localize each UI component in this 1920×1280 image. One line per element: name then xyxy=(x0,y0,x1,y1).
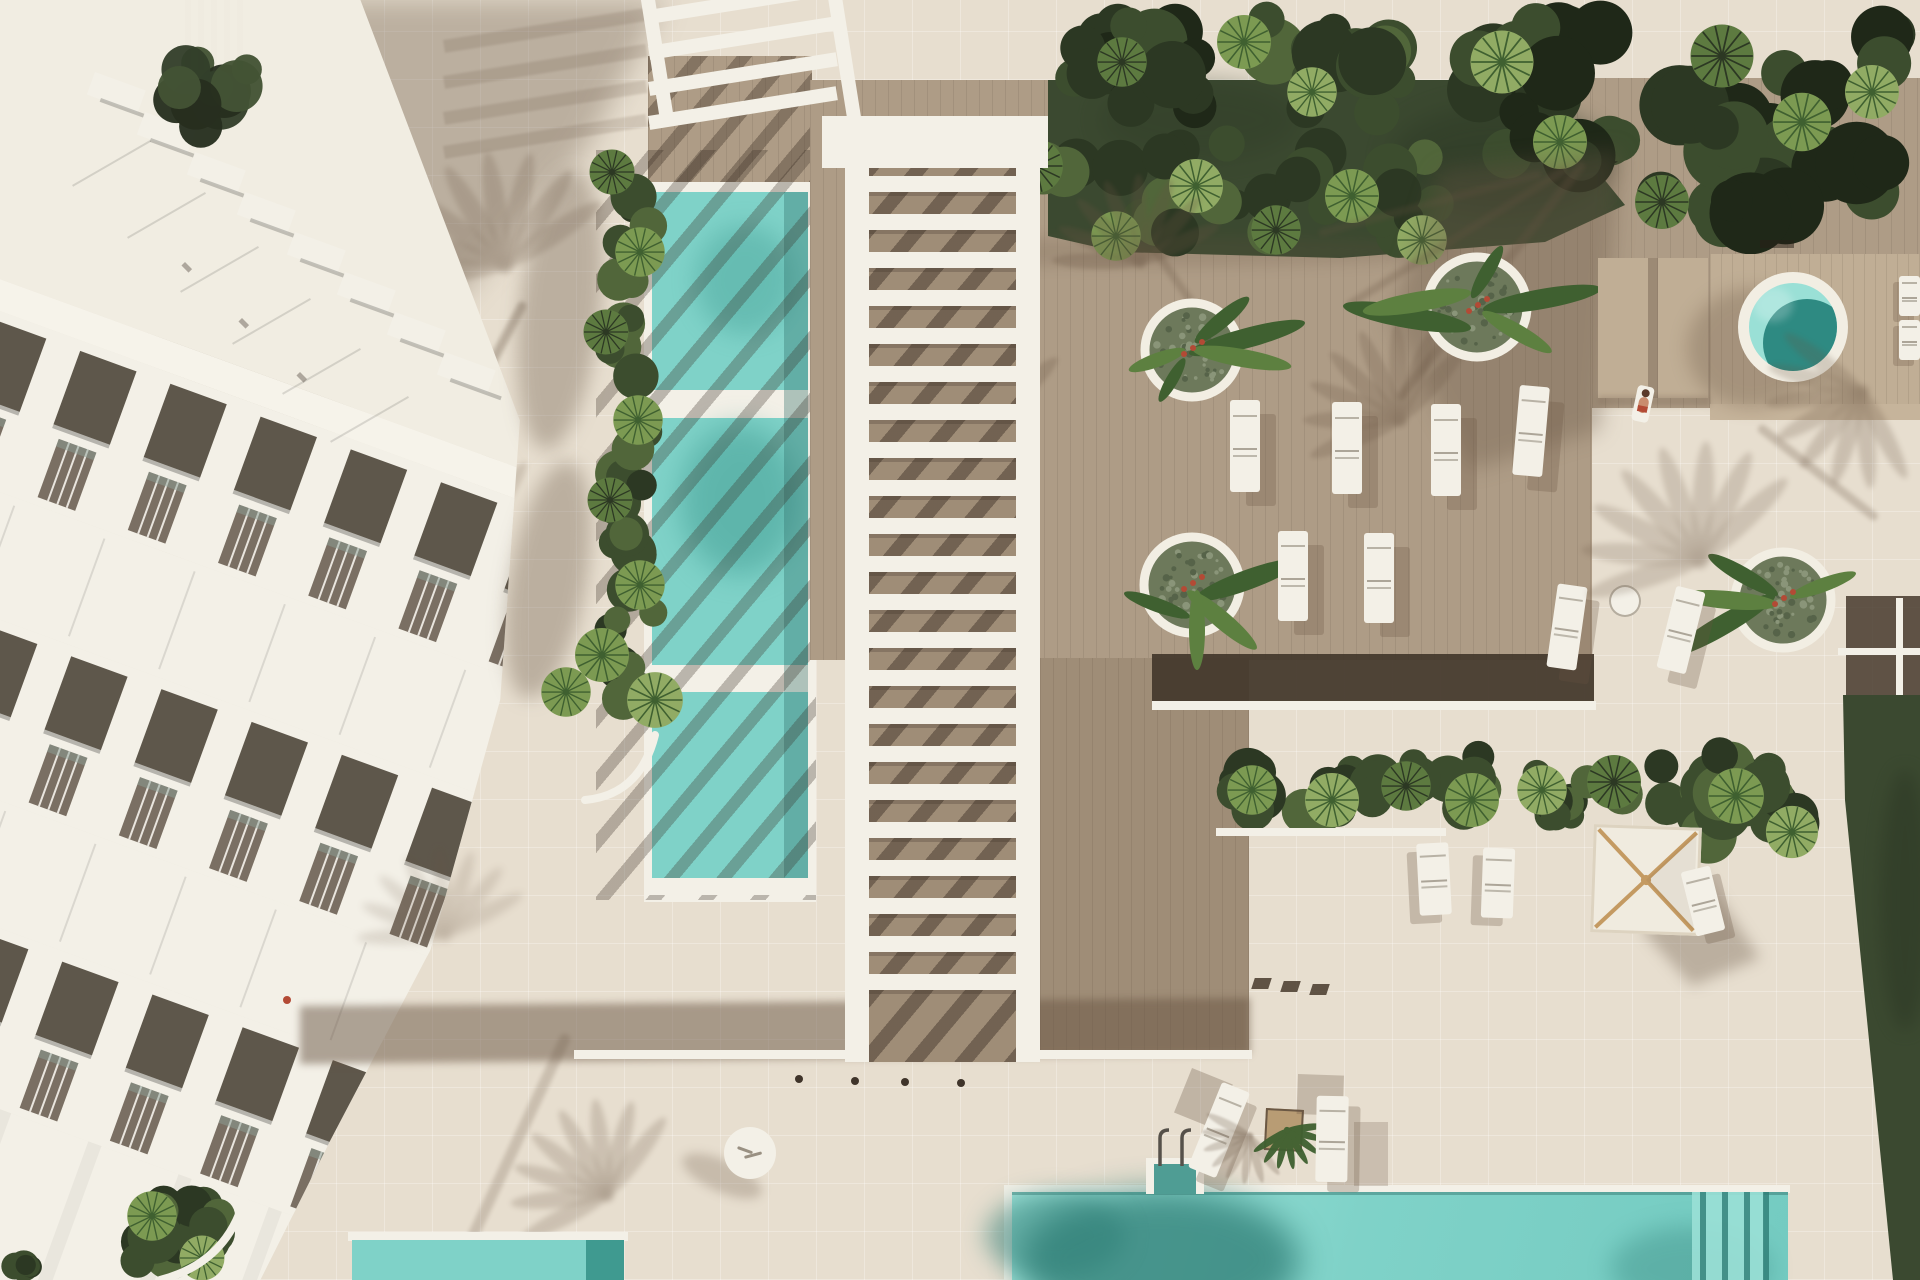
window-mullion xyxy=(878,745,901,804)
spa-platform xyxy=(1710,254,1920,406)
pool-ladder xyxy=(0,0,1920,1280)
hot-tub-shadow xyxy=(1687,288,1817,408)
building-band-terr xyxy=(0,412,1001,969)
fan-palm xyxy=(0,0,1920,1280)
towel-fold xyxy=(1485,884,1511,887)
window-frame xyxy=(23,739,92,821)
fan-palm xyxy=(0,0,1920,1280)
window-glass xyxy=(561,1247,620,1280)
lounger-back-shade xyxy=(1174,1068,1233,1129)
pergola-slat-shadow xyxy=(869,838,1016,842)
facade-module xyxy=(449,1113,597,1280)
parapet-step xyxy=(287,232,346,273)
pergola-slat-shadow xyxy=(869,230,1016,234)
platform-seam xyxy=(1760,240,1794,248)
window-mullion xyxy=(38,1056,61,1115)
window-mullion xyxy=(300,1152,323,1211)
pergola-slat xyxy=(869,974,1016,990)
pool-steps xyxy=(1692,1192,1764,1280)
headrest-line xyxy=(1281,545,1305,547)
bush-cluster xyxy=(0,0,1920,1280)
window-mullion xyxy=(868,741,891,800)
towel-fold xyxy=(1335,457,1359,459)
pergola-slat xyxy=(869,366,1016,382)
fan-palm xyxy=(0,0,1920,1280)
sun-lounger xyxy=(1899,276,1920,316)
window-frame xyxy=(556,1241,625,1280)
parapet-step-shadow xyxy=(300,258,352,280)
round-planter xyxy=(0,0,1920,1280)
lounger-shadow xyxy=(1407,851,1443,925)
lap-pool-water xyxy=(652,692,808,878)
window-mullion xyxy=(417,577,440,636)
roof-vent xyxy=(181,262,192,273)
panel-shadow-line xyxy=(774,687,832,711)
window-glass xyxy=(398,570,457,642)
panel-shadow-line xyxy=(124,1068,182,1092)
square-parasol xyxy=(1590,824,1702,936)
pergola-slat xyxy=(869,936,1016,952)
window-frame xyxy=(745,1002,814,1084)
corner-hedge xyxy=(0,0,1920,1280)
sun-lounger xyxy=(1230,400,1260,492)
panel-shadow-line xyxy=(0,1002,2,1026)
headrest-line xyxy=(1219,1097,1242,1108)
pergola-top-rail xyxy=(640,0,674,124)
facade-panel xyxy=(775,614,858,708)
lounger-cushion xyxy=(1656,586,1705,675)
fan-palm xyxy=(0,0,1920,1280)
window-mullion xyxy=(688,676,711,735)
fan-palm xyxy=(0,0,1920,1280)
hedge-cast-shadow xyxy=(506,167,615,454)
window-mullion xyxy=(237,820,260,879)
hedge-strip xyxy=(0,0,1920,1280)
window-mullion xyxy=(480,1217,503,1276)
lap-pool-head-shadows xyxy=(648,56,812,188)
panel-shadow-line xyxy=(43,730,101,754)
glass-reflection xyxy=(769,1007,809,1028)
panel-shadow-line xyxy=(305,1133,363,1157)
lounger-back-shade xyxy=(1297,1074,1344,1116)
hedge-curb xyxy=(0,0,1920,1280)
glass-reflection xyxy=(408,876,448,897)
tree-canopy xyxy=(0,0,1920,1280)
deck-steps-shaded xyxy=(1846,596,1920,706)
towel-fold xyxy=(1204,1134,1227,1145)
window-glass xyxy=(669,669,728,741)
pergola-slat-shadow xyxy=(869,420,1016,424)
sunbather xyxy=(1630,385,1656,428)
railing-line xyxy=(429,670,466,768)
window-mullion xyxy=(219,1122,242,1181)
deck-curb xyxy=(1152,701,1596,710)
hedge-cast-shadow xyxy=(490,455,607,705)
window-mullion xyxy=(598,952,621,1011)
window-glass xyxy=(128,472,187,544)
sun-lounger xyxy=(1416,842,1452,916)
person-head xyxy=(1641,389,1650,398)
fan-palm xyxy=(0,0,1920,1280)
window-frame xyxy=(32,434,101,516)
facade-module xyxy=(0,916,56,1109)
round-daybed xyxy=(724,1127,776,1179)
pool-lounger xyxy=(1188,1082,1250,1179)
pergola-slat xyxy=(869,708,1016,724)
pavement xyxy=(0,0,1920,1280)
window-mullion xyxy=(769,705,792,764)
glass-reflection xyxy=(507,603,547,624)
railing-hairline xyxy=(180,246,259,293)
railing-line xyxy=(0,811,6,909)
palm-shadow-on-deck xyxy=(0,0,1920,1280)
window-frame xyxy=(574,631,643,713)
palm-shadow-on-platform xyxy=(0,0,1920,1280)
facade-module xyxy=(458,808,606,1001)
pool-palm-shadow xyxy=(1610,1226,1770,1280)
hedge-band-shadow xyxy=(860,237,1460,267)
main-pool xyxy=(1012,1192,1788,1280)
sun-lounger xyxy=(1546,583,1587,670)
glass-reflection xyxy=(327,537,367,558)
window-frame xyxy=(294,838,363,920)
bench-shadow xyxy=(1598,396,1710,406)
window-mullion xyxy=(517,613,540,672)
pergola-slat xyxy=(869,784,1016,800)
facade-panel xyxy=(396,1093,479,1187)
facade-module xyxy=(557,535,705,728)
facade-module xyxy=(187,709,335,902)
panel-shadow-line xyxy=(494,894,552,918)
facade-module xyxy=(106,371,254,564)
pergola-slat xyxy=(869,252,1016,268)
pool-palm-shadow xyxy=(1020,1190,1300,1280)
palm-shadow xyxy=(0,0,1920,1280)
canopy-shadow-on-deck xyxy=(0,0,1920,1280)
lounger-cushion xyxy=(1364,533,1394,623)
window-glass xyxy=(380,1181,439,1253)
facade-module xyxy=(7,643,155,836)
headrest-line xyxy=(1367,547,1391,549)
window-mullion xyxy=(390,1184,413,1243)
sun-lounger xyxy=(1656,586,1705,675)
glass-reflection xyxy=(399,1181,439,1202)
towel-fold xyxy=(1281,585,1305,587)
window-mullion xyxy=(29,1053,52,1112)
pergola-slat xyxy=(869,176,1016,192)
fan-palm xyxy=(0,0,1920,1280)
bench-gap-shadow xyxy=(1648,258,1658,398)
parapet-step-shadow xyxy=(450,378,502,400)
towel-fold xyxy=(1518,439,1542,443)
platform-bench xyxy=(1658,258,1708,398)
facade-panel xyxy=(505,515,588,609)
window-mullion xyxy=(489,912,512,971)
facade-panel xyxy=(135,689,218,783)
facade-module xyxy=(269,1047,417,1240)
pergola-slat xyxy=(869,670,1016,686)
lounger-cushion xyxy=(1481,847,1515,918)
palm-shadow-on-deck xyxy=(0,0,1920,1280)
window-glass xyxy=(759,702,818,774)
palm-trunk-shadow xyxy=(1150,245,1220,340)
glass-reflection xyxy=(236,505,276,526)
facade-panel xyxy=(676,886,759,980)
towel-fold xyxy=(1902,344,1917,346)
pergola-slat xyxy=(869,404,1016,420)
window-mullion xyxy=(498,915,521,974)
pergola-slat-shadow xyxy=(869,686,1016,690)
railing-line xyxy=(59,844,96,942)
pergola-slat xyxy=(869,556,1016,572)
window-glass xyxy=(29,744,88,816)
lap-pool-water xyxy=(652,192,808,390)
facade-panel xyxy=(216,1027,299,1121)
window-mullion xyxy=(678,672,701,731)
lounger-cushion xyxy=(1546,583,1587,670)
window-glass xyxy=(0,406,6,478)
window-mullion xyxy=(859,738,882,797)
panel-shadow-line xyxy=(233,490,291,514)
pergola-slat-shadow xyxy=(869,648,1016,652)
railing-line xyxy=(339,637,376,735)
water-shadow xyxy=(1763,299,1837,371)
facade-panel xyxy=(0,623,37,717)
railing-line xyxy=(0,505,15,603)
lounger-shadow xyxy=(1471,855,1505,926)
pergola-rail xyxy=(845,128,869,1062)
daybed-shadow xyxy=(676,1144,768,1208)
pergola-top-slat xyxy=(648,86,838,130)
pergola-slat-shadow xyxy=(869,990,1016,994)
glass-reflection xyxy=(146,472,186,493)
facade-panel xyxy=(865,646,948,740)
pool-step-line xyxy=(1722,1192,1728,1280)
window-frame xyxy=(213,499,282,581)
palm-shadow xyxy=(0,0,1920,1280)
headrest-line xyxy=(1434,419,1458,421)
facade-module xyxy=(548,840,696,1033)
towel-fold xyxy=(1233,455,1257,457)
glass-reflection xyxy=(137,777,177,798)
fan-palm xyxy=(0,0,1920,1280)
grass-shade xyxy=(1880,770,1920,1030)
railing-line xyxy=(609,735,646,833)
panel-shadow-line xyxy=(593,621,651,645)
person-swimsuit xyxy=(1637,405,1648,413)
lap-pool-head-deck xyxy=(648,56,812,188)
facade-panel xyxy=(126,994,209,1088)
towel-fold xyxy=(1485,890,1511,893)
window-frame xyxy=(195,1110,264,1192)
facade-panel xyxy=(45,656,128,750)
window-mullion xyxy=(778,1017,801,1076)
window-mullion xyxy=(227,508,250,567)
fan-palm xyxy=(0,0,1920,1280)
pergola-bolt xyxy=(795,1075,803,1083)
parapet-step xyxy=(137,112,196,153)
pool-palm-shadow xyxy=(985,1193,1125,1278)
sun-lounger xyxy=(1481,847,1515,918)
lounger-shadow xyxy=(1246,414,1276,506)
facade-panel xyxy=(0,318,46,412)
fan-palm xyxy=(0,0,1920,1280)
facade-panel xyxy=(766,919,849,1013)
window-mullion xyxy=(760,1010,783,1069)
panel-shadow-line xyxy=(133,762,191,786)
facade-module xyxy=(0,305,74,498)
panel-shadow-line xyxy=(52,424,110,448)
floor-grate xyxy=(1280,981,1301,992)
main-pool-lip xyxy=(1010,1185,1790,1193)
window-frame xyxy=(664,664,733,746)
palm-shadow xyxy=(0,0,1920,1280)
railing-line xyxy=(790,801,827,899)
window-mullion xyxy=(246,515,269,574)
window-mullion xyxy=(408,882,431,941)
pergola-slat-shadow xyxy=(869,344,1016,348)
headrest-line xyxy=(1486,859,1512,862)
palm-trunk-shadow xyxy=(450,300,528,437)
terrace-divider xyxy=(0,1174,192,1280)
towel-fold xyxy=(1335,450,1359,452)
pergola-slat xyxy=(869,518,1016,534)
towel-fold xyxy=(1519,432,1543,436)
headrest-line xyxy=(1335,417,1359,419)
pergola-slat-shadow xyxy=(869,876,1016,880)
hedge-curb xyxy=(0,0,1920,1280)
sun-lounger xyxy=(1512,385,1550,477)
window-mullion xyxy=(309,846,332,905)
lap-pool-deep-shade xyxy=(680,425,800,575)
building-band-units xyxy=(0,252,1059,856)
glass-reflection xyxy=(868,734,908,755)
pergola-slat-shadow xyxy=(869,496,1016,500)
towel-fold xyxy=(1667,635,1691,643)
facade-module xyxy=(630,1179,778,1280)
towel-fold xyxy=(1319,1147,1345,1149)
window-glass xyxy=(209,810,268,882)
towel-fold xyxy=(1434,452,1458,454)
towel-fold xyxy=(1668,629,1692,637)
roof-vent xyxy=(238,318,249,329)
parapet-step-shadow xyxy=(400,338,452,360)
towel-fold xyxy=(1421,885,1447,888)
side-table xyxy=(1609,585,1641,617)
pool-step-line xyxy=(1744,1192,1750,1280)
kids-pool-lip xyxy=(348,1232,628,1241)
lounger-cushion xyxy=(1188,1082,1250,1179)
railing-line xyxy=(600,1041,637,1139)
parapet-step-shadow xyxy=(250,218,302,240)
window-mullion xyxy=(138,784,161,843)
panel-shadow-line xyxy=(684,654,742,678)
facade-module xyxy=(0,611,65,804)
pergola-slat xyxy=(869,214,1016,230)
building-band-plain xyxy=(0,224,1069,697)
deck-northeast xyxy=(1592,78,1920,408)
window-glass xyxy=(480,908,539,980)
terrace-divider xyxy=(0,1109,11,1280)
corner-hedge xyxy=(0,0,1920,1280)
walkway-curb xyxy=(574,1050,1252,1059)
window-glass xyxy=(750,1007,809,1079)
pergola-slat xyxy=(869,898,1016,914)
pergola-top-slat-shadow xyxy=(443,44,648,89)
window-mullion xyxy=(47,751,70,810)
window-mullion xyxy=(38,748,61,807)
towel-fold xyxy=(1367,587,1391,589)
sun-lounger xyxy=(1899,320,1920,360)
window-mullion xyxy=(318,850,341,909)
window-mullion xyxy=(399,879,422,938)
pergola-slat xyxy=(869,746,1016,762)
lounger-shadow xyxy=(1348,416,1378,508)
window-mullion xyxy=(156,482,179,541)
window-glass xyxy=(299,843,358,915)
window-glass xyxy=(471,1214,530,1280)
parasol-ribs xyxy=(1593,827,1698,932)
window-mullion xyxy=(228,1126,251,1185)
window-mullion xyxy=(318,541,341,600)
towel-fold xyxy=(1319,1140,1345,1142)
fan-palm xyxy=(0,0,1920,1280)
facade-module xyxy=(828,634,976,827)
panel-shadow-line xyxy=(395,1166,453,1190)
window-mullion xyxy=(580,1253,603,1280)
towel-fold xyxy=(1206,1127,1229,1138)
lounger-shadow xyxy=(1558,597,1599,684)
towel-fold xyxy=(1902,297,1917,299)
panel-shadow-line xyxy=(314,828,372,852)
table-plant xyxy=(0,0,1920,1280)
window-frame xyxy=(303,532,372,614)
pergola-slat xyxy=(869,594,1016,610)
hot-tub-water xyxy=(1749,283,1837,371)
window-mullion xyxy=(129,1089,152,1148)
facade-module xyxy=(179,1014,327,1207)
fan-palm xyxy=(0,0,1920,1280)
fan-palm xyxy=(0,0,1920,1280)
green-roof-slat-shadows xyxy=(185,0,247,70)
window-frame xyxy=(0,401,11,483)
sun-lounger xyxy=(1431,404,1461,496)
facade-panel xyxy=(0,929,28,1023)
window-mullion xyxy=(508,919,531,978)
railing-hairline xyxy=(330,396,409,443)
towel-fold xyxy=(1281,578,1305,580)
window-frame xyxy=(646,1274,715,1280)
window-mullion xyxy=(137,475,160,534)
fan-palm xyxy=(0,0,1920,1280)
railing-line xyxy=(68,538,105,636)
spa-platform-step xyxy=(1710,404,1920,420)
person-body xyxy=(1637,396,1650,414)
window-mullion xyxy=(336,548,359,607)
sun-lounger xyxy=(1332,402,1362,494)
railing-line xyxy=(149,876,186,974)
pergola-top-slat xyxy=(648,52,838,96)
headrest-line xyxy=(1676,599,1700,607)
window-frame xyxy=(375,1176,444,1258)
panel-shadow-line xyxy=(485,1199,543,1223)
terrace-red-item xyxy=(283,996,291,1004)
palm-trunk-shadow xyxy=(1756,423,1880,522)
lawn-shade xyxy=(1390,105,1610,215)
pergola-slat-shadow xyxy=(869,382,1016,386)
window-glass xyxy=(20,1050,79,1122)
palm-shadow xyxy=(0,0,1920,1280)
